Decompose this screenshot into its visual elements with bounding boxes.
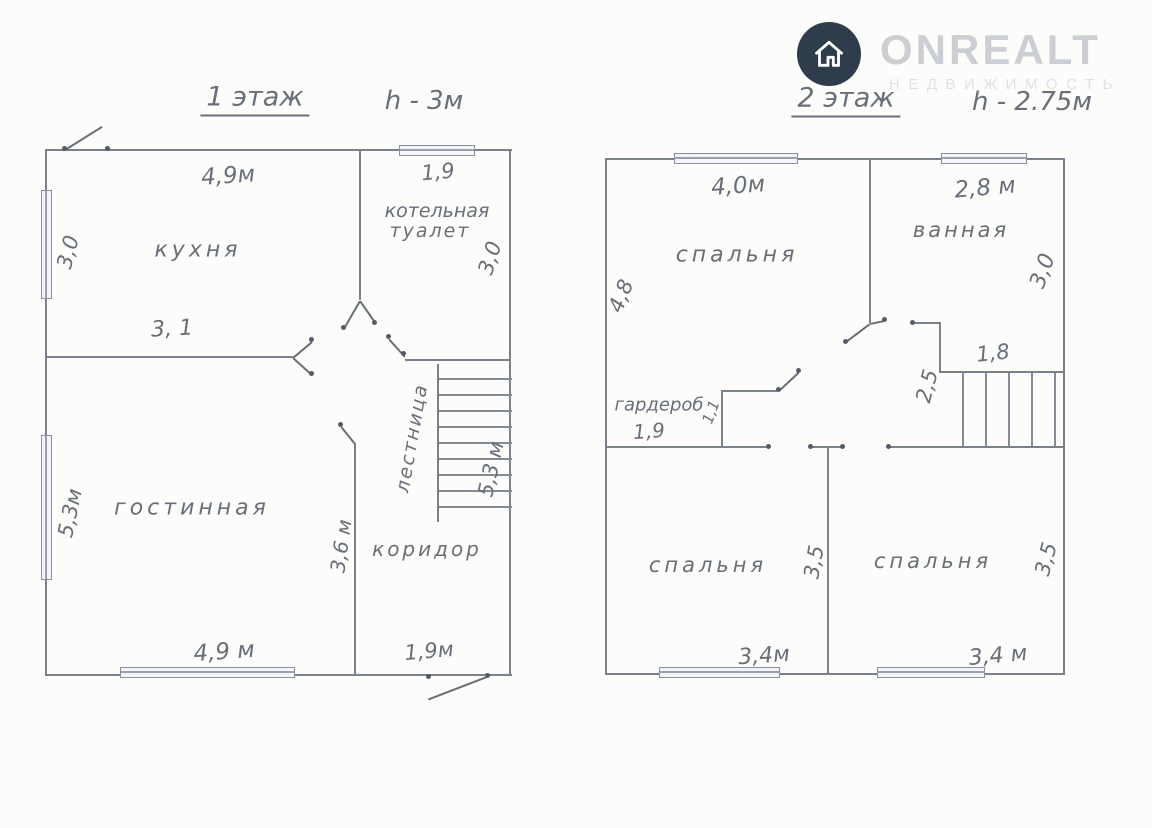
- wall-end-dot: [776, 387, 781, 392]
- dim-label: 3,0: [473, 238, 506, 277]
- wall-segment: [605, 446, 770, 448]
- wall-segment: [359, 150, 361, 300]
- room-label-bedroom: спальня: [676, 243, 799, 268]
- wall-end-dot: [766, 444, 771, 449]
- dim-label: 4,9 м: [193, 637, 256, 667]
- window: [399, 145, 475, 156]
- wall-end-dot: [105, 146, 110, 151]
- dim-label: 1,9м: [403, 637, 454, 665]
- wall-end-dot: [910, 320, 915, 325]
- door-swing: [428, 676, 488, 700]
- dim-label: 3,4 м: [968, 641, 1029, 671]
- dim-label: 4,9м: [200, 161, 256, 191]
- dim-label: 3,0: [52, 233, 84, 271]
- dim-label: 3,5: [799, 543, 828, 580]
- wall-segment: [354, 443, 356, 675]
- room-label-toilet: туалет: [390, 220, 471, 242]
- wall-end-dot: [808, 444, 813, 449]
- wall-end-dot: [386, 334, 391, 339]
- door-swing: [64, 126, 102, 151]
- wall-end-dot: [401, 351, 406, 356]
- door-swing: [343, 301, 361, 330]
- dim-label: 1,8: [975, 339, 1011, 366]
- room-label-boiler: котельная: [385, 200, 490, 222]
- wall-end-dot: [840, 444, 845, 449]
- door-swing: [340, 426, 355, 444]
- window: [674, 153, 798, 164]
- door-swing: [292, 341, 312, 359]
- dim-label: 2,8 м: [953, 172, 1016, 203]
- dim-label: 3,5: [1030, 540, 1062, 578]
- floor2-title: 2 этаж: [791, 83, 900, 118]
- dim-label: 4,0м: [710, 171, 766, 201]
- wall-segment: [721, 390, 777, 392]
- floor1-ceiling-height: h - 3м: [385, 86, 464, 116]
- wall-segment: [605, 158, 607, 675]
- wall-end-dot: [62, 146, 67, 151]
- dim-label: 2,5: [911, 367, 943, 405]
- dim-label: 1,9: [420, 159, 455, 186]
- room-label-bedroom: спальня: [874, 549, 992, 573]
- door-swing: [845, 323, 870, 343]
- floor1-title: 1 этаж: [200, 82, 309, 117]
- dim-label: 3,6 м: [325, 518, 356, 574]
- wall-segment: [888, 446, 1065, 448]
- dim-label: 4,8: [604, 276, 639, 316]
- wall-segment: [869, 159, 871, 323]
- wall-end-dot: [372, 320, 377, 325]
- wall-end-dot: [309, 337, 314, 342]
- wall-end-dot: [796, 368, 801, 373]
- wall-segment: [939, 322, 941, 373]
- floor2-ceiling-height: h - 2.75м: [972, 87, 1092, 117]
- window: [120, 667, 295, 678]
- wall-end-dot: [341, 325, 346, 330]
- room-label-living: гостинная: [114, 496, 270, 521]
- wall-segment: [913, 322, 941, 324]
- dim-label: 3,4м: [737, 642, 790, 671]
- wall-end-dot: [426, 674, 431, 679]
- wall-end-dot: [485, 673, 490, 678]
- wall-segment: [721, 391, 723, 447]
- floorplan-sheet: ONREALT НЕДВИЖИМОСТЬ 1 этаж h - 3м: [0, 0, 1152, 828]
- wall-end-dot: [309, 371, 314, 376]
- dim-label: 5,3м: [53, 486, 87, 539]
- window: [941, 153, 1027, 164]
- wall-segment: [45, 356, 293, 358]
- door-swing: [778, 372, 799, 392]
- window: [41, 190, 52, 299]
- wall-end-dot: [886, 444, 891, 449]
- room-label-wardrobe: гардероб: [615, 395, 704, 416]
- dim-label: 3,0: [1025, 250, 1060, 291]
- dim-label: 1,9: [632, 418, 665, 444]
- wall-segment: [405, 359, 510, 361]
- room-label-bathroom: ванная: [913, 218, 1009, 242]
- onrealt-logo-badge: [797, 22, 861, 86]
- logo-brand-text: ONREALT: [880, 26, 1101, 74]
- wall-end-dot: [843, 339, 848, 344]
- wall-end-dot: [338, 422, 343, 427]
- stairs-flight: [941, 373, 1063, 447]
- window: [41, 435, 52, 580]
- house-icon: [809, 34, 849, 74]
- wall-segment: [1063, 158, 1065, 675]
- room-label-corridor: коридор: [372, 537, 482, 561]
- wall-segment: [827, 446, 829, 674]
- wall-end-dot: [882, 317, 887, 322]
- dim-label: 3, 1: [150, 315, 193, 342]
- room-label-stairs: лестница: [392, 382, 433, 495]
- room-label-bedroom: спальня: [649, 553, 767, 577]
- room-label-kitchen: кухня: [155, 238, 242, 263]
